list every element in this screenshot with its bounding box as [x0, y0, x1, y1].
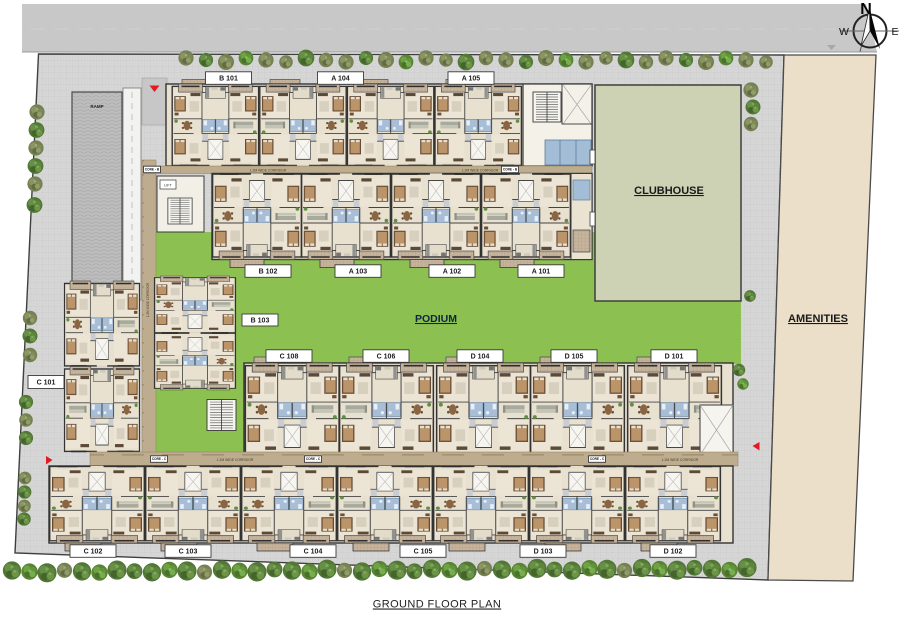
svg-text:CORE - C: CORE - C	[306, 457, 321, 461]
svg-text:CORE - C: CORE - C	[152, 457, 167, 461]
svg-text:CORE - B: CORE - B	[145, 168, 160, 172]
svg-text:A 101: A 101	[532, 269, 551, 276]
svg-text:A 103: A 103	[349, 269, 368, 276]
svg-text:A 104: A 104	[331, 76, 350, 83]
svg-text:CORE - B: CORE - B	[503, 168, 518, 172]
svg-text:C 108: C 108	[280, 354, 299, 361]
svg-text:C 102: C 102	[84, 549, 103, 556]
svg-text:1.2M WIDE CORRIDOR: 1.2M WIDE CORRIDOR	[250, 169, 287, 173]
svg-text:D 103: D 103	[534, 549, 553, 556]
svg-text:E: E	[891, 26, 898, 38]
svg-text:C 101: C 101	[37, 380, 56, 387]
svg-text:A 105: A 105	[462, 76, 481, 83]
svg-text:LIFT: LIFT	[164, 184, 172, 188]
svg-text:B 102: B 102	[259, 269, 278, 276]
svg-text:PODIUM: PODIUM	[415, 313, 457, 325]
svg-text:1.2M WIDE CORRIDOR: 1.2M WIDE CORRIDOR	[146, 282, 150, 317]
svg-text:1.2M WIDE CORRIDOR: 1.2M WIDE CORRIDOR	[462, 169, 499, 173]
svg-text:D 101: D 101	[665, 354, 684, 361]
svg-text:D 104: D 104	[471, 354, 490, 361]
svg-text:D 105: D 105	[565, 354, 584, 361]
svg-text:C 106: C 106	[377, 354, 396, 361]
svg-text:CLUBHOUSE: CLUBHOUSE	[634, 185, 704, 197]
svg-text:1.2M WIDE CORRIDOR: 1.2M WIDE CORRIDOR	[662, 458, 699, 462]
svg-text:1.2M WIDE CORRIDOR: 1.2M WIDE CORRIDOR	[217, 458, 254, 462]
svg-text:W: W	[839, 26, 849, 38]
svg-text:D 102: D 102	[664, 549, 683, 556]
svg-text:A 102: A 102	[443, 269, 462, 276]
svg-text:B 103: B 103	[251, 318, 270, 325]
svg-text:N: N	[860, 1, 872, 18]
svg-text:RAMP: RAMP	[90, 104, 103, 109]
svg-text:C 103: C 103	[179, 549, 198, 556]
svg-text:AMENITIES: AMENITIES	[788, 313, 848, 325]
svg-text:GROUND FLOOR PLAN: GROUND FLOOR PLAN	[373, 599, 501, 611]
svg-text:C 104: C 104	[304, 549, 323, 556]
svg-text:C 105: C 105	[414, 549, 433, 556]
svg-text:B 101: B 101	[219, 76, 238, 83]
svg-text:CORE - C: CORE - C	[590, 457, 605, 461]
